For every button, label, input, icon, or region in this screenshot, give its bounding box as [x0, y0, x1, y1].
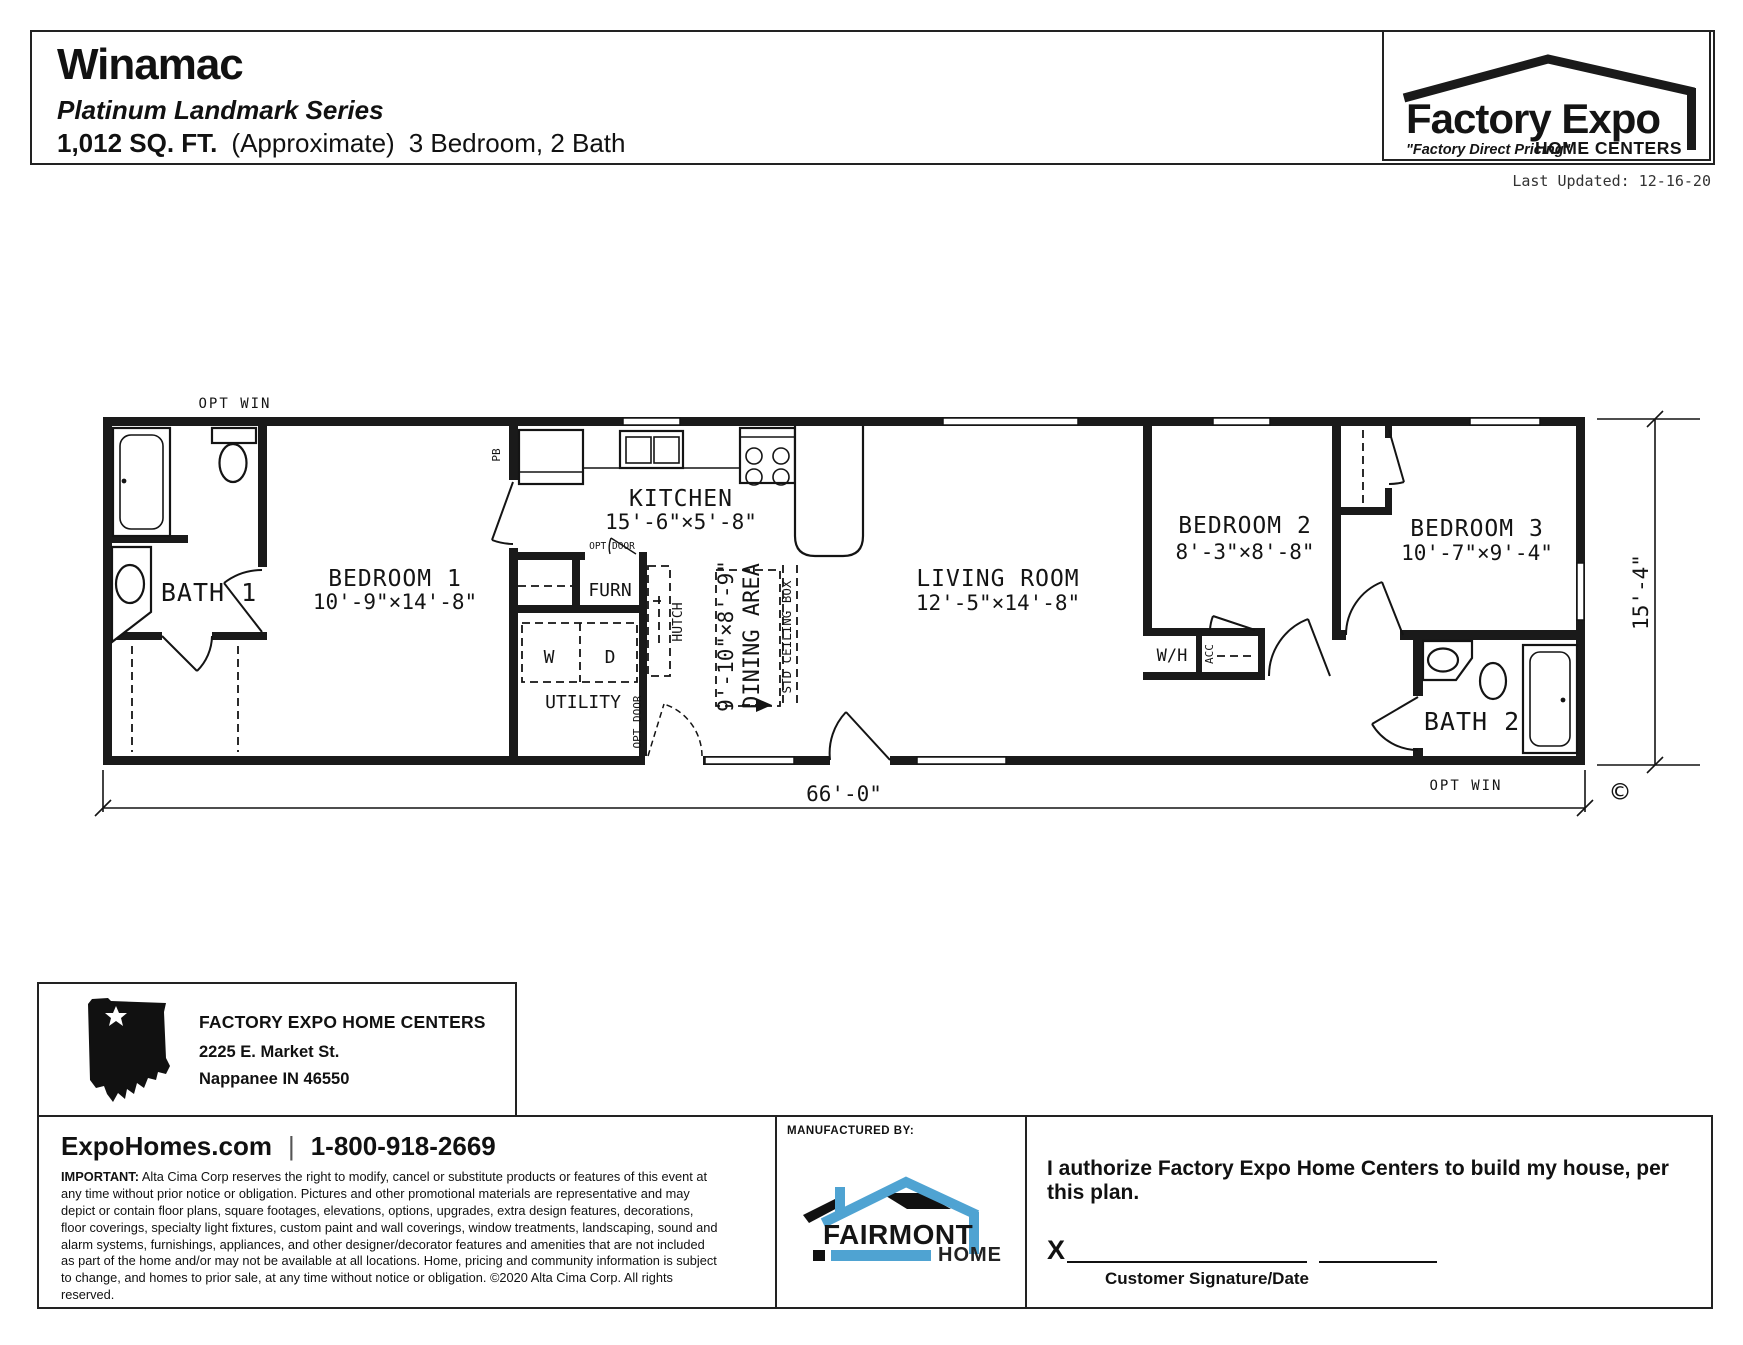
dims-living-room: 12'-5"×14'-8" — [916, 591, 1080, 615]
label-bedroom3: BEDROOM 3 — [1410, 516, 1544, 542]
signature-line[interactable] — [1067, 1261, 1307, 1263]
bath2-vanity-icon — [1423, 641, 1472, 680]
fairmont-homes-logo-icon: FAIRMONT HOMES — [801, 1165, 1001, 1275]
dims-kitchen: 15'-6"×5'-8" — [605, 510, 757, 534]
important-label: IMPORTANT: — [61, 1169, 139, 1184]
refrigerator-icon — [519, 430, 583, 484]
dims-bedroom2: 8'-3"×8'-8" — [1175, 540, 1314, 564]
floor-plan-flyer: Winamac Platinum Landmark Series 1,012 S… — [0, 0, 1743, 1345]
footer-box: ExpoHomes.com|1-800-918-2669 IMPORTANT: … — [37, 1115, 1713, 1309]
label-opt-win-bottom: OPT WIN — [1429, 778, 1502, 794]
label-hutch: HUTCH — [671, 602, 686, 641]
toilet2-icon — [1480, 663, 1506, 699]
label-opt-win-top: OPT WIN — [198, 396, 271, 412]
label-kitchen: KITCHEN — [629, 486, 733, 512]
bathtub2-icon — [1523, 645, 1577, 753]
page-title: Winamac — [57, 40, 243, 90]
sqft-value: 1,012 SQ. FT. — [57, 128, 217, 158]
phone-number[interactable]: 1-800-918-2669 — [311, 1131, 496, 1161]
fairmont-sub: HOMES — [938, 1244, 1001, 1266]
label-bath1: BATH 1 — [161, 578, 257, 607]
label-opt-door-bottom: OPT DOOR — [631, 695, 644, 748]
logo-subtitle: HOME CENTERS — [1535, 138, 1682, 158]
dealer-info: FACTORY EXPO HOME CENTERS 2225 E. Market… — [199, 1012, 486, 1089]
label-living-room: LIVING ROOM — [916, 566, 1079, 592]
dealer-name: FACTORY EXPO HOME CENTERS — [199, 1012, 486, 1033]
legal-paragraph: IMPORTANT: Alta Cima Corp reserves the r… — [61, 1169, 721, 1304]
label-bedroom2: BEDROOM 2 — [1178, 513, 1312, 539]
toilet-icon — [212, 428, 256, 482]
pipe-divider: | — [272, 1131, 311, 1161]
sqft-approx: (Approximate) — [231, 128, 394, 158]
series-subtitle: Platinum Landmark Series — [57, 95, 384, 126]
manufactured-by-pane: MANUFACTURED BY: FAIRMONT HOMES — [777, 1117, 1025, 1307]
floor-plan: OPT WIN PB BATH 1 BEDROOM 1 10'-9"×14'-8… — [80, 350, 1720, 830]
sink-vanity-icon — [112, 547, 151, 642]
legal-pane: ExpoHomes.com|1-800-918-2669 IMPORTANT: … — [39, 1117, 775, 1307]
dim-width: 66'-0" — [806, 782, 882, 806]
label-acc: ACC — [1203, 644, 1216, 664]
website-link[interactable]: ExpoHomes.com — [61, 1131, 272, 1161]
dealer-address2: Nappanee IN 46550 — [199, 1070, 486, 1089]
spec-line: 1,012 SQ. FT.(Approximate)3 Bedroom, 2 B… — [57, 128, 626, 159]
indiana-state-icon — [77, 996, 177, 1106]
kitchen-sink-icon — [620, 431, 683, 468]
stove-icon — [740, 428, 795, 485]
dealer-box: FACTORY EXPO HOME CENTERS 2225 E. Market… — [37, 982, 517, 1117]
bathtub-icon — [113, 428, 170, 536]
authorization-text: I authorize Factory Expo Home Centers to… — [1047, 1157, 1711, 1205]
contact-row: ExpoHomes.com|1-800-918-2669 — [61, 1131, 496, 1162]
signature-x: X — [1047, 1235, 1065, 1266]
kitchen-peninsula — [795, 426, 863, 556]
beds-baths: 3 Bedroom, 2 Bath — [409, 128, 626, 158]
legal-text: Alta Cima Corp reserves the right to mod… — [61, 1169, 718, 1302]
dims-bedroom1: 10'-9"×14'-8" — [313, 590, 477, 614]
label-pb: PB — [490, 448, 503, 462]
label-bedroom1: BEDROOM 1 — [328, 566, 462, 592]
date-line[interactable] — [1319, 1261, 1437, 1263]
label-dining: DINING AREA — [740, 563, 765, 709]
label-bath2: BATH 2 — [1424, 707, 1520, 736]
copyright-mark: © — [1612, 775, 1629, 808]
label-dryer: D — [605, 647, 616, 668]
logo-name: Factory Expo — [1406, 95, 1660, 142]
signature-label: Customer Signature/Date — [1067, 1269, 1347, 1289]
authorization-pane: I authorize Factory Expo Home Centers to… — [1027, 1117, 1711, 1307]
manufactured-by-label: MANUFACTURED BY: — [787, 1125, 914, 1137]
dealer-address1: 2225 E. Market St. — [199, 1043, 486, 1062]
hutch-box — [648, 566, 670, 676]
label-furn: FURN — [588, 580, 631, 601]
dims-bedroom3: 10'-7"×9'-4" — [1401, 541, 1553, 565]
label-std-ceiling-box: STD CEILING BOX — [779, 580, 794, 693]
factory-expo-logo-icon: Factory Expo "Factory Direct Pricing" HO… — [1384, 32, 1711, 159]
factory-expo-logo-box: Factory Expo "Factory Direct Pricing" HO… — [1382, 30, 1711, 161]
label-washer: W — [544, 647, 555, 668]
label-opt-door-top: OPT DOOR — [589, 541, 635, 552]
dim-height: 15'-4" — [1629, 554, 1653, 630]
dims-dining: 9'-10"×8'-9" — [714, 560, 738, 712]
label-water-heater: W/H — [1157, 646, 1188, 666]
last-updated: Last Updated: 12-16-20 — [1512, 172, 1711, 190]
label-utility: UTILITY — [545, 692, 621, 713]
